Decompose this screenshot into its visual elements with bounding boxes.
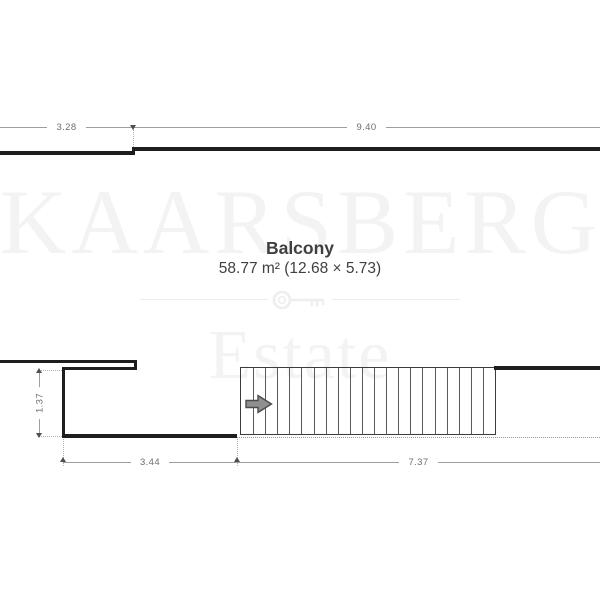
dim-bottom-right-label: 7.37 [399, 456, 437, 469]
wall-bottom-upper [0, 360, 137, 364]
wall-bottom-right [494, 366, 600, 370]
floorplan-canvas: KAARSBERG Estate 3.28 9.40 Balcony 58.77… [0, 0, 600, 600]
stair-tread [350, 368, 351, 434]
dim-bottom-left: 3.44 [63, 455, 237, 469]
stair-tread [459, 368, 460, 434]
stair-tread [277, 368, 278, 434]
wall-top-left [0, 151, 135, 155]
wall-bottom-lower [62, 434, 237, 438]
dim-line-segment [0, 127, 47, 128]
watermark-divider-right [332, 299, 460, 300]
watermark-divider-left [140, 299, 268, 300]
dim-tick [130, 125, 136, 130]
stair-tread [435, 368, 436, 434]
stair-tread [386, 368, 387, 434]
room-name: Balcony [0, 238, 600, 259]
dim-top-right-label: 9.40 [347, 121, 385, 134]
dim-bottom-right: 7.37 [237, 455, 600, 469]
wall-step-connector [132, 147, 135, 155]
stair-tread [301, 368, 302, 434]
dim-tick [36, 433, 42, 438]
stair-tread [471, 368, 472, 434]
dim-top-left: 3.28 [0, 120, 133, 134]
stairs-direction-arrow-icon [245, 394, 273, 414]
dim-top-right: 9.40 [133, 120, 600, 134]
dim-extension-line [39, 370, 62, 371]
stair-tread [314, 368, 315, 434]
dim-line-segment [169, 462, 237, 463]
stair-tread [362, 368, 363, 434]
wall-left-vertical [62, 367, 65, 438]
stair-tread [410, 368, 411, 434]
dim-line-segment [438, 462, 600, 463]
dim-tick [234, 457, 240, 462]
dim-line-segment [386, 127, 600, 128]
stair-tread [338, 368, 339, 434]
key-icon [271, 287, 329, 313]
dim-left-vertical-label: 1.37 [35, 387, 46, 419]
stair-tread [483, 368, 484, 434]
dim-top-left-label: 3.28 [47, 121, 85, 134]
stairs [240, 367, 496, 435]
dim-line-segment [63, 462, 131, 463]
stair-tread [422, 368, 423, 434]
room-area: 58.77 m² (12.68 × 5.73) [0, 260, 600, 278]
dim-extension-line [39, 436, 62, 437]
stairs-baseline-dotted [237, 437, 600, 438]
dim-left-vertical: 1.37 [39, 370, 40, 436]
wall-top-right [132, 147, 600, 151]
stair-tread [374, 368, 375, 434]
dim-tick [36, 368, 42, 373]
stair-tread [447, 368, 448, 434]
dim-tick [60, 457, 66, 462]
wall-end-cap [134, 360, 137, 370]
stair-tread [326, 368, 327, 434]
dim-line-segment [86, 127, 133, 128]
dim-line-segment [237, 462, 399, 463]
stair-tread [289, 368, 290, 434]
wall-bottom-inner [62, 367, 137, 370]
stair-tread [398, 368, 399, 434]
dim-line-segment [133, 127, 347, 128]
dim-bottom-left-label: 3.44 [131, 456, 169, 469]
